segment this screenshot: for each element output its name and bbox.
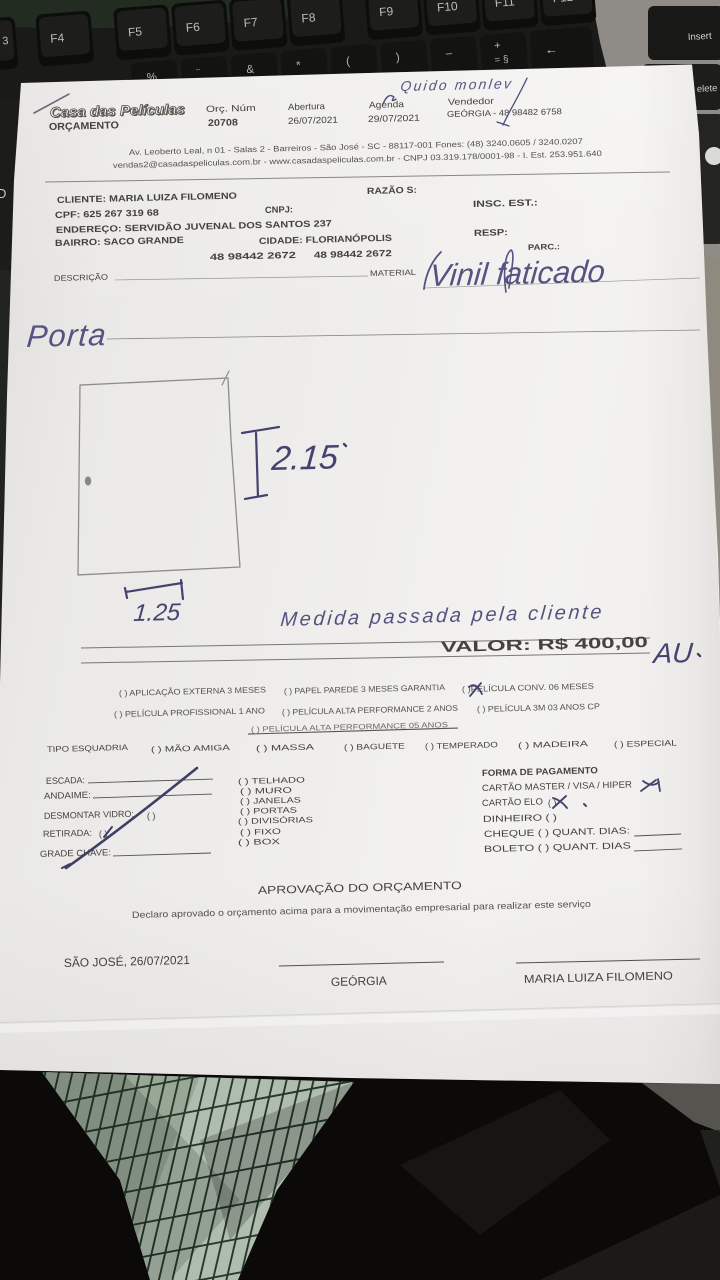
svg-text:( ) FIXO: ( ) FIXO [240, 827, 281, 837]
svg-text:RESP:: RESP: [474, 227, 508, 238]
svg-text:( ) MURO: ( ) MURO [240, 786, 292, 796]
svg-text:DINHEIRO ( ): DINHEIRO ( ) [483, 812, 557, 824]
svg-text:20708: 20708 [208, 117, 238, 129]
svg-text:1.25: 1.25 [132, 599, 181, 627]
svg-text:DESCRIÇÃO: DESCRIÇÃO [54, 273, 108, 283]
svg-text:RETIRADA:: RETIRADA: [43, 828, 92, 839]
svg-text:Porta: Porta [25, 317, 108, 354]
svg-text:Casa das Películas: Casa das Películas [50, 101, 186, 120]
svg-text:( ) MADEIRA: ( ) MADEIRA [518, 739, 589, 750]
svg-text:CNPJ:: CNPJ: [265, 204, 293, 215]
svg-text:Abertura: Abertura [288, 101, 325, 112]
svg-text:Quido monlev: Quido monlev [400, 75, 514, 94]
svg-text:AU: AU [650, 637, 694, 669]
svg-text:Vinil faticado: Vinil faticado [428, 254, 606, 293]
svg-text:SÃO JOSÉ, 26/07/2021: SÃO JOSÉ, 26/07/2021 [64, 952, 191, 970]
svg-text:D: D [0, 186, 6, 201]
svg-text:F11: F11 [494, 0, 515, 10]
svg-text:48 98442 2672: 48 98442 2672 [314, 248, 392, 260]
svg-text:( ) TEMPERADO: ( ) TEMPERADO [425, 740, 498, 751]
svg-text:F7: F7 [243, 15, 258, 30]
svg-text:←: ← [544, 41, 558, 57]
svg-text:F10: F10 [436, 0, 458, 15]
svg-text:&: & [246, 63, 255, 76]
svg-text:48 98442 2672: 48 98442 2672 [210, 250, 296, 262]
svg-text:GEÓRGIA: GEÓRGIA [331, 973, 387, 989]
svg-text:( ): ( ) [147, 811, 156, 821]
svg-text:MATERIAL: MATERIAL [370, 268, 417, 278]
svg-text:( ) MASSA: ( ) MASSA [256, 743, 315, 753]
svg-text:ORÇAMENTO: ORÇAMENTO [49, 120, 119, 133]
svg-text:Insert: Insert [688, 31, 713, 43]
svg-text:elete: elete [697, 83, 718, 95]
svg-text:( ) BOX: ( ) BOX [238, 837, 281, 847]
svg-text:F9: F9 [379, 4, 394, 19]
svg-text:( ) TELHADO: ( ) TELHADO [238, 775, 305, 786]
svg-text:INSC. EST.:: INSC. EST.: [473, 197, 538, 209]
svg-text:( ) BAGUETE: ( ) BAGUETE [344, 742, 405, 752]
svg-text:26/07/2021: 26/07/2021 [288, 115, 338, 126]
svg-text:F4: F4 [50, 31, 65, 46]
svg-text:+: + [494, 40, 501, 52]
svg-text:( ) JANELAS: ( ) JANELAS [240, 795, 301, 805]
svg-text:ESCADA:: ESCADA: [46, 775, 85, 786]
svg-text:Orç. Núm: Orç. Núm [206, 103, 256, 114]
svg-text:RAZÃO S:: RAZÃO S: [367, 185, 417, 196]
svg-text:( ) DIVISÓRIAS: ( ) DIVISÓRIAS [238, 815, 313, 826]
svg-text:GRADE CHAVE:: GRADE CHAVE: [40, 847, 111, 859]
svg-text:29/07/2021: 29/07/2021 [368, 113, 420, 124]
svg-text:F8: F8 [301, 10, 316, 25]
svg-text:F6: F6 [185, 20, 200, 35]
svg-text:PARC.:: PARC.: [528, 242, 560, 252]
svg-text:( ) ESPECIAL: ( ) ESPECIAL [614, 738, 678, 749]
svg-text:Agenda: Agenda [369, 99, 404, 110]
svg-text:3: 3 [2, 35, 9, 47]
svg-text:Vendedor: Vendedor [448, 96, 494, 107]
svg-text:2.15: 2.15 [269, 438, 340, 478]
svg-text:( ) PORTAS: ( ) PORTAS [240, 806, 297, 816]
svg-text:ANDAIME:: ANDAIME: [44, 790, 91, 801]
svg-text:F5: F5 [127, 24, 142, 39]
svg-text:= §: = § [494, 54, 509, 66]
svg-text:CARTÃO ELO: CARTÃO ELO [482, 796, 543, 807]
